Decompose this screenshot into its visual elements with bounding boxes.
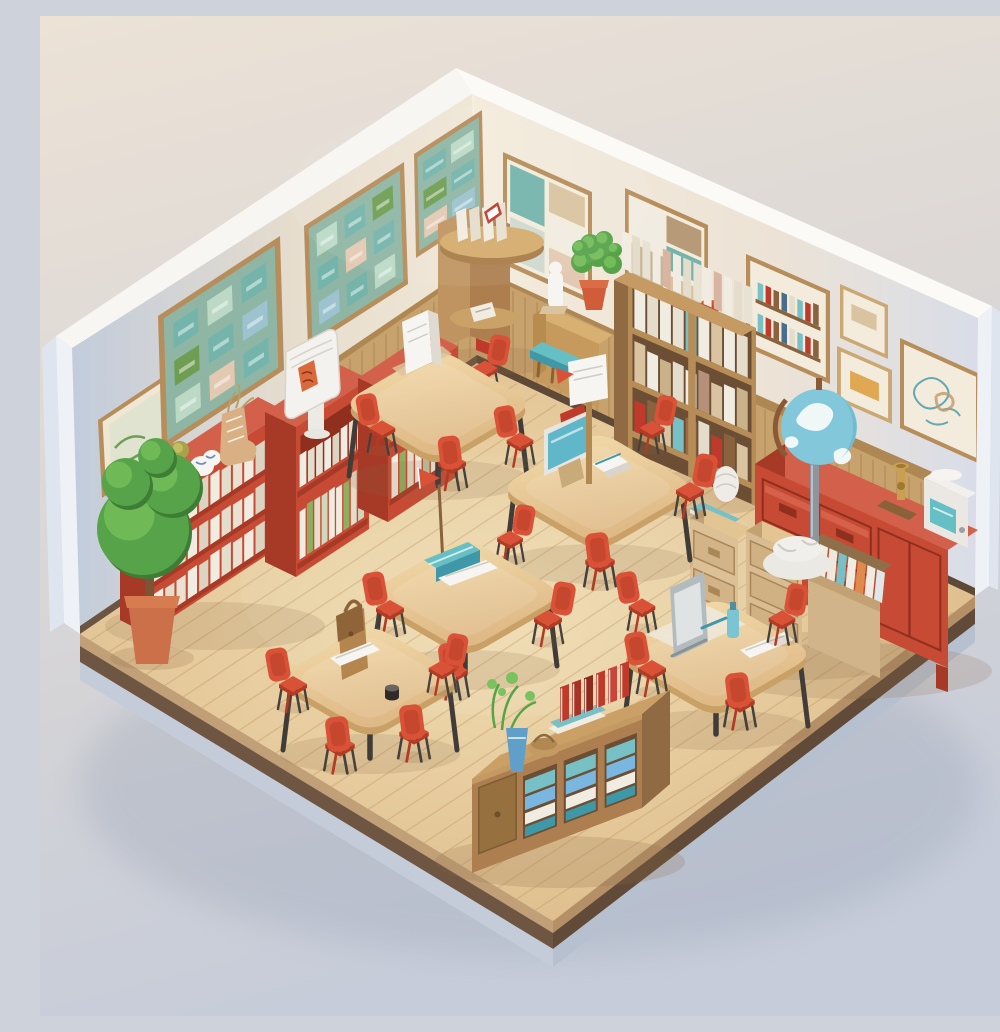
scene-svg [40,16,1000,1016]
illustration-canvas: An isometric cutaway room on a floating … [40,16,1000,1016]
wall-light [290,106,650,286]
paper-holder [713,466,739,502]
